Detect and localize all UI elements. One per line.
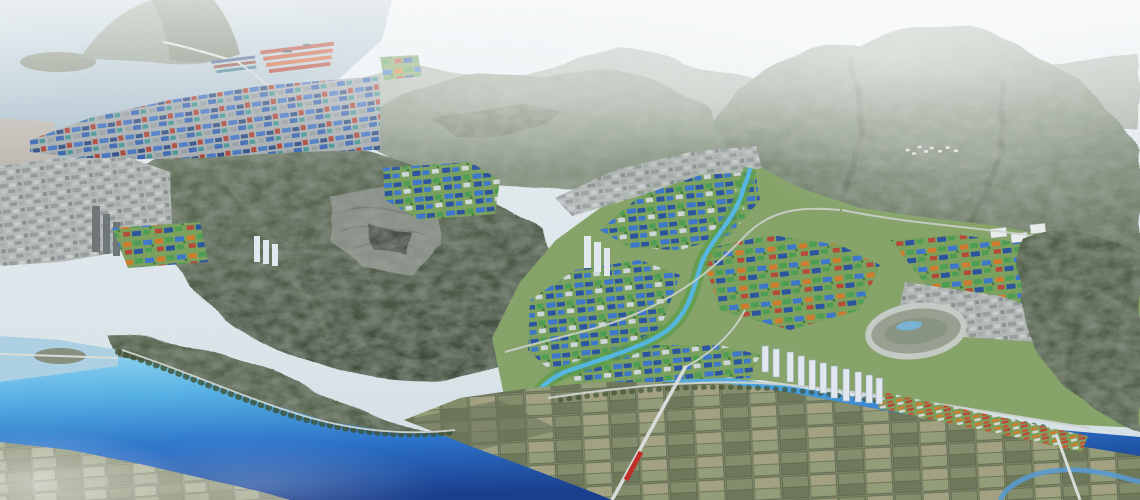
scene-canvas — [0, 0, 1140, 500]
photo-grain-overlay — [0, 0, 1140, 500]
aerial-rendering-image — [0, 0, 1140, 500]
